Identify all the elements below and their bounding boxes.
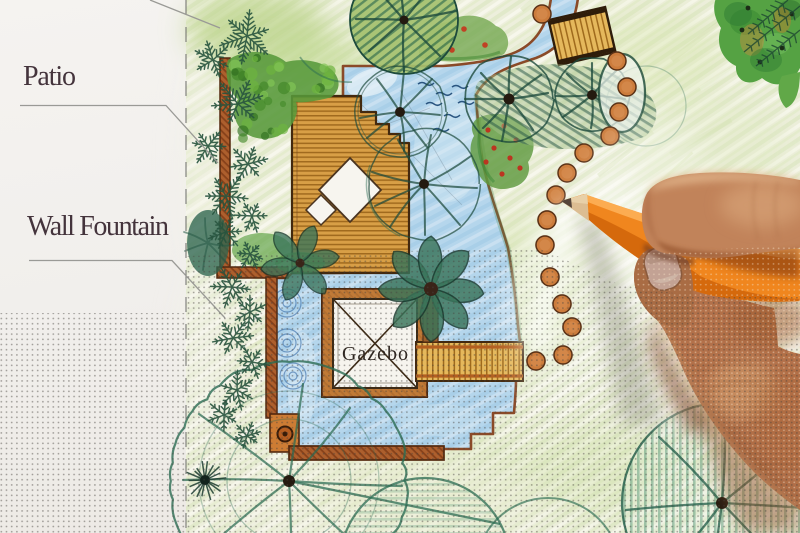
svg-text:Patio: Patio bbox=[23, 61, 76, 92]
svg-text:Wall Fountain: Wall Fountain bbox=[27, 211, 169, 242]
